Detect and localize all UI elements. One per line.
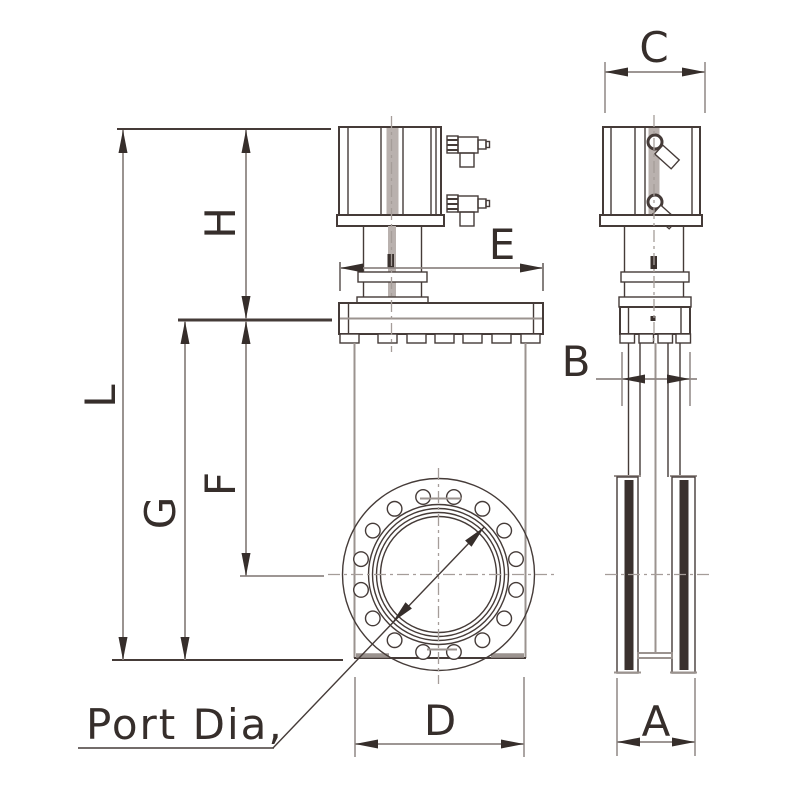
bonnet-front	[357, 226, 428, 306]
bolt-hole	[366, 611, 381, 626]
arrowhead	[242, 553, 251, 576]
fitting-block	[458, 196, 478, 212]
mounting-tab	[658, 334, 673, 343]
mounting-tab	[463, 334, 482, 343]
technical-drawing-page: L H F G E	[0, 0, 800, 800]
arrowhead	[340, 264, 363, 273]
dim-label-L: L	[76, 384, 125, 408]
fitting-tube	[460, 212, 474, 226]
bolt-hole	[387, 633, 402, 648]
bolt-hole	[416, 645, 431, 660]
plate-tabs-side	[620, 334, 691, 343]
arrowhead	[119, 637, 128, 660]
bolt-hole	[509, 583, 524, 598]
arrowhead	[501, 740, 524, 749]
dim-label-E: E	[489, 220, 516, 269]
dim-label-A: A	[642, 697, 671, 746]
body-bottom-bar	[638, 653, 672, 658]
fitting-outlet	[478, 140, 486, 149]
bolt-hole	[475, 502, 490, 517]
bolt-hole	[366, 523, 381, 538]
mounting-tab	[435, 334, 454, 343]
plate-tabs-front	[340, 334, 540, 343]
arrowhead	[181, 637, 190, 660]
dimension-B: B	[562, 337, 697, 406]
dimension-L: L	[76, 130, 127, 660]
bonnet-base	[619, 297, 691, 307]
dimension-F: F	[196, 321, 250, 576]
arrowhead	[682, 68, 705, 77]
body-top-plate-front	[339, 303, 543, 343]
fitting-outlet-cap	[486, 201, 490, 207]
piston-rod-band	[387, 128, 399, 215]
dim-label-F: F	[196, 472, 245, 496]
bolt-hole	[416, 490, 431, 505]
actuator-side	[600, 127, 702, 229]
arrowhead	[355, 740, 378, 749]
arrowhead	[667, 375, 690, 384]
port-dia-label: Port Dia,	[86, 700, 284, 749]
actuator-end-cap	[337, 215, 444, 226]
dimension-H: H	[196, 130, 250, 319]
air-fitting-upper	[447, 136, 490, 167]
body-block-side	[620, 307, 691, 343]
bolt-hole	[354, 583, 369, 598]
bolt-hole	[475, 633, 490, 648]
mounting-tab	[378, 334, 397, 343]
fitting-outlet	[478, 199, 486, 208]
arrowhead	[672, 738, 695, 747]
mounting-tab	[340, 334, 359, 343]
bolt-hole	[447, 490, 462, 505]
mounting-tab	[407, 334, 426, 343]
stem-pin	[388, 254, 395, 268]
dimension-G: G	[136, 321, 189, 660]
dim-label-C: C	[639, 23, 668, 72]
front-view	[328, 116, 554, 684]
bolt-hole	[387, 502, 402, 517]
mounting-tab	[521, 334, 540, 343]
arrowhead	[119, 130, 128, 153]
actuator-front	[337, 127, 444, 226]
arrowhead	[520, 264, 543, 273]
fitting-block	[458, 137, 478, 153]
mounting-tab	[620, 334, 635, 343]
dimension-D: D	[355, 677, 524, 757]
arrowhead	[242, 296, 251, 319]
mounting-tab	[676, 334, 691, 343]
fitting-tube	[460, 153, 474, 167]
dim-label-B: B	[562, 337, 591, 386]
dim-label-H: H	[196, 207, 245, 239]
side-view	[600, 115, 713, 673]
block-center-dot	[651, 316, 656, 321]
arrowhead	[605, 68, 628, 77]
bolt-hole	[354, 552, 369, 567]
arrowhead	[181, 321, 190, 344]
arrowhead	[242, 321, 251, 344]
arrowhead	[617, 738, 640, 747]
actuator-end-cap	[600, 215, 702, 226]
tie-rod-nut	[648, 135, 662, 149]
bonnet-collar	[621, 272, 689, 282]
bolt-hole	[509, 552, 524, 567]
dimension-C: C	[605, 23, 705, 113]
air-fitting-lower	[447, 195, 490, 226]
dim-label-G: G	[136, 497, 185, 530]
bonnet-collar	[358, 272, 427, 282]
mounting-tab	[492, 334, 511, 343]
bolt-hole	[447, 645, 462, 660]
bolt-hole	[497, 611, 512, 626]
bonnet-side	[619, 226, 691, 307]
arrowhead	[622, 375, 645, 384]
mounting-tab	[639, 334, 654, 343]
gate-valve-drawing: L H F G E	[0, 0, 800, 800]
fitting-outlet-cap	[486, 142, 490, 148]
bolt-hole	[497, 523, 512, 538]
arrowhead	[242, 130, 251, 153]
dimension-A: A	[617, 678, 695, 756]
dim-label-D: D	[424, 696, 456, 745]
